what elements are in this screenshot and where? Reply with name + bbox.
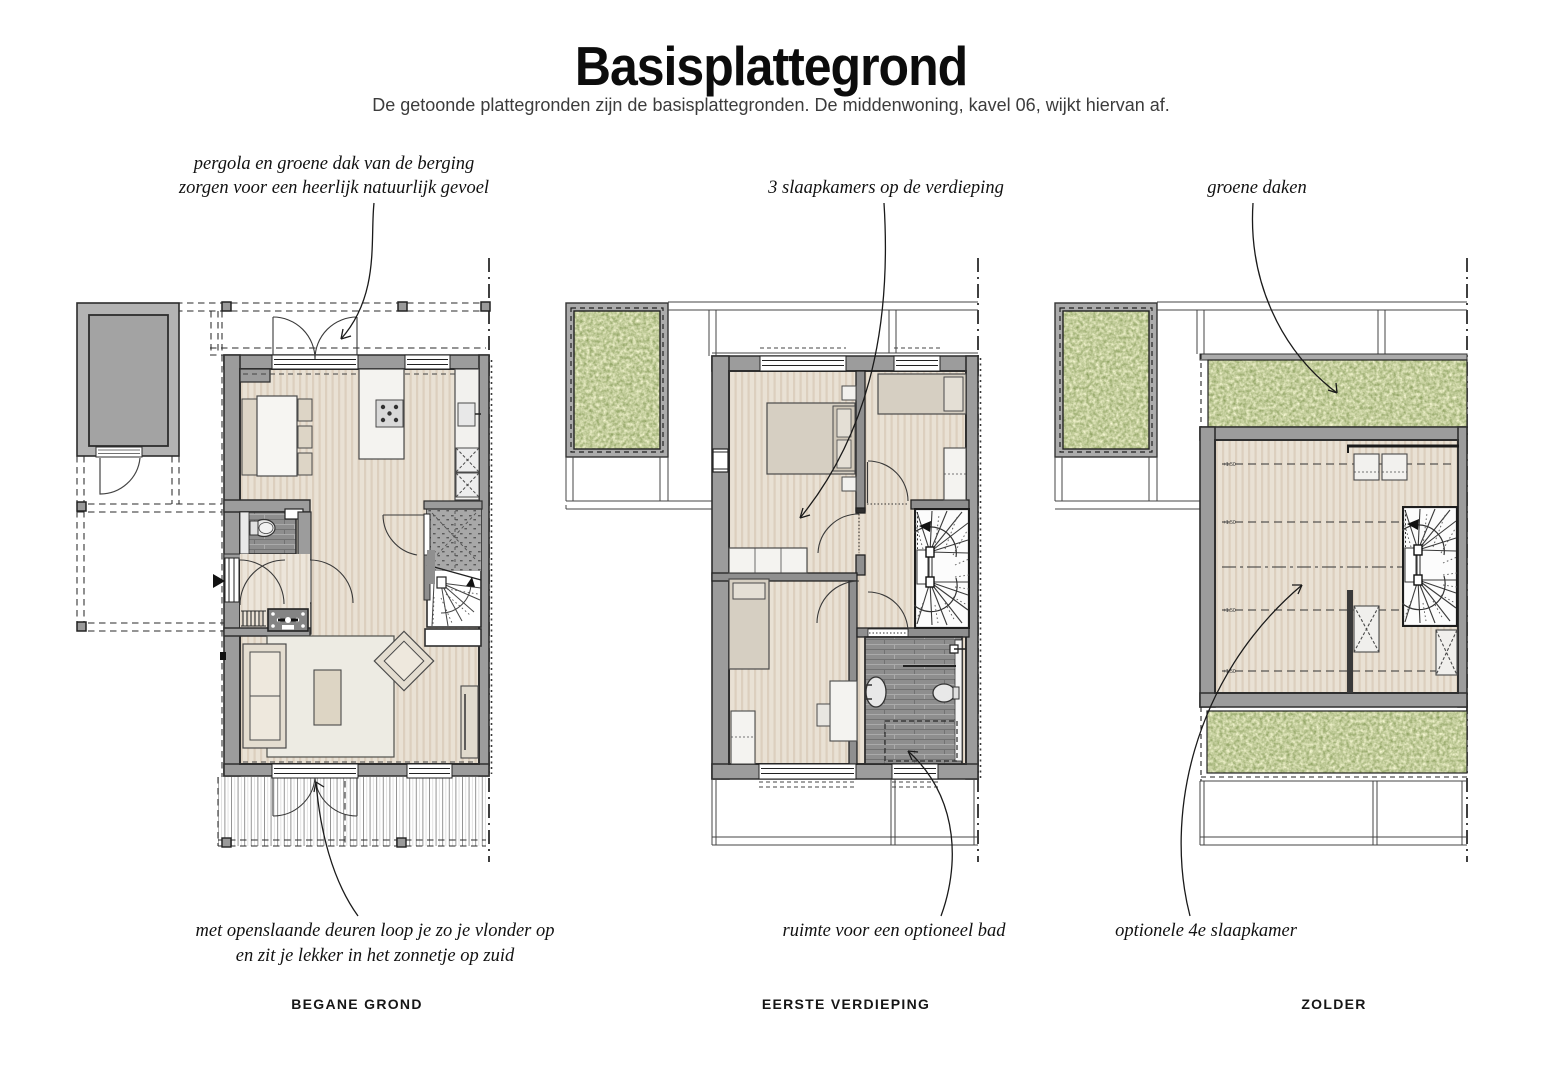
svg-text:+1.50: +1.50 xyxy=(1223,520,1236,526)
svg-text:EERSTE VERDIEPING: EERSTE VERDIEPING xyxy=(762,996,930,1012)
svg-text:optionele 4e slaapkamer: optionele 4e slaapkamer xyxy=(1115,921,1298,941)
svg-text:De getoonde plattegronden zijn: De getoonde plattegronden zijn de basisp… xyxy=(372,95,1170,115)
svg-text:pergola en groene dak van de b: pergola en groene dak van de berging xyxy=(192,154,475,174)
svg-text:zorgen voor een heerlijk natuu: zorgen voor een heerlijk natuurlijk gevo… xyxy=(178,178,489,198)
svg-text:+1.50: +1.50 xyxy=(1223,608,1236,614)
svg-text:BEGANE GROND: BEGANE GROND xyxy=(291,996,423,1012)
svg-text:Basisplattegrond: Basisplattegrond xyxy=(575,36,967,98)
svg-text:+1.50: +1.50 xyxy=(1223,462,1236,468)
svg-text:en zit je lekker in het zonnet: en zit je lekker in het zonnetje op zuid xyxy=(236,946,515,966)
svg-text:ruimte voor een optioneel bad: ruimte voor een optioneel bad xyxy=(783,921,1007,941)
svg-text:groene daken: groene daken xyxy=(1207,178,1306,198)
svg-text:ZOLDER: ZOLDER xyxy=(1301,996,1366,1012)
svg-text:met openslaande deuren loop je: met openslaande deuren loop je zo je vlo… xyxy=(196,921,555,941)
svg-text:3 slaapkamers op de verdieping: 3 slaapkamers op de verdieping xyxy=(767,178,1004,198)
